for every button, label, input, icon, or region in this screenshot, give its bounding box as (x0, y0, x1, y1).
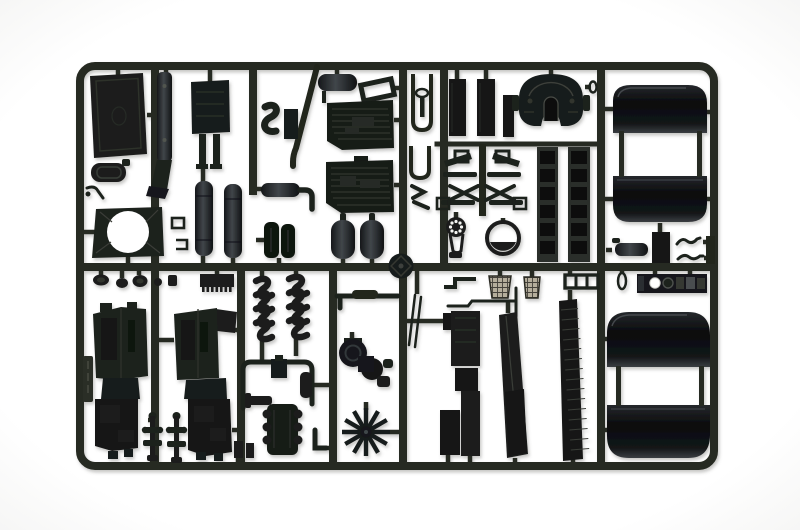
sprue-photo (0, 0, 800, 530)
photo-canvas (0, 0, 800, 530)
photo-vignette (0, 0, 800, 530)
